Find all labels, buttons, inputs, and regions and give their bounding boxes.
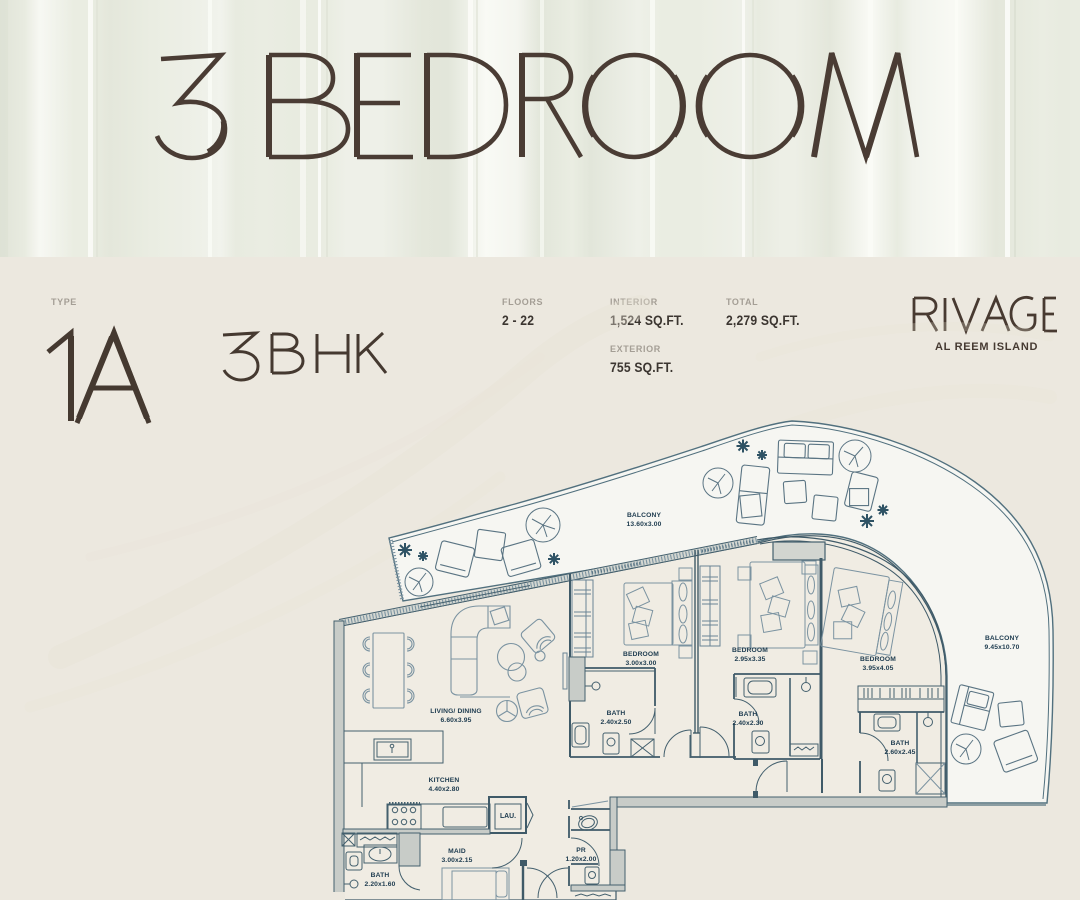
svg-text:2.20x1.60: 2.20x1.60	[364, 881, 395, 888]
svg-text:BEDROOM: BEDROOM	[732, 647, 768, 654]
svg-text:BEDROOM: BEDROOM	[860, 656, 896, 663]
svg-text:BATH: BATH	[891, 740, 910, 747]
svg-text:BATH: BATH	[371, 872, 390, 879]
svg-text:LIVING/ DINING: LIVING/ DINING	[430, 708, 482, 715]
svg-text:2.60x2.45: 2.60x2.45	[884, 749, 915, 756]
svg-text:2.40x2.30: 2.40x2.30	[732, 720, 763, 727]
svg-text:9.45x10.70: 9.45x10.70	[985, 644, 1020, 651]
svg-text:BATH: BATH	[607, 710, 626, 717]
svg-text:BEDROOM: BEDROOM	[623, 651, 659, 658]
svg-text:PR: PR	[576, 847, 586, 854]
svg-text:LAU.: LAU.	[500, 813, 516, 820]
svg-text:2.40x2.50: 2.40x2.50	[600, 719, 631, 726]
svg-text:BATH: BATH	[739, 711, 758, 718]
svg-text:KITCHEN: KITCHEN	[429, 777, 460, 784]
svg-text:3.00x3.00: 3.00x3.00	[625, 660, 656, 667]
svg-text:BALCONY: BALCONY	[627, 512, 662, 519]
svg-text:BALCONY: BALCONY	[985, 635, 1020, 642]
svg-text:13.60x3.00: 13.60x3.00	[627, 521, 662, 528]
svg-text:2.95x3.35: 2.95x3.35	[734, 656, 765, 663]
svg-text:3.95x4.05: 3.95x4.05	[862, 665, 893, 672]
svg-text:1.20x2.00: 1.20x2.00	[565, 856, 596, 863]
svg-text:6.60x3.95: 6.60x3.95	[440, 717, 471, 724]
svg-text:3.00x2.15: 3.00x2.15	[441, 857, 472, 864]
svg-text:4.40x2.80: 4.40x2.80	[428, 786, 459, 793]
svg-text:MAID: MAID	[448, 848, 466, 855]
